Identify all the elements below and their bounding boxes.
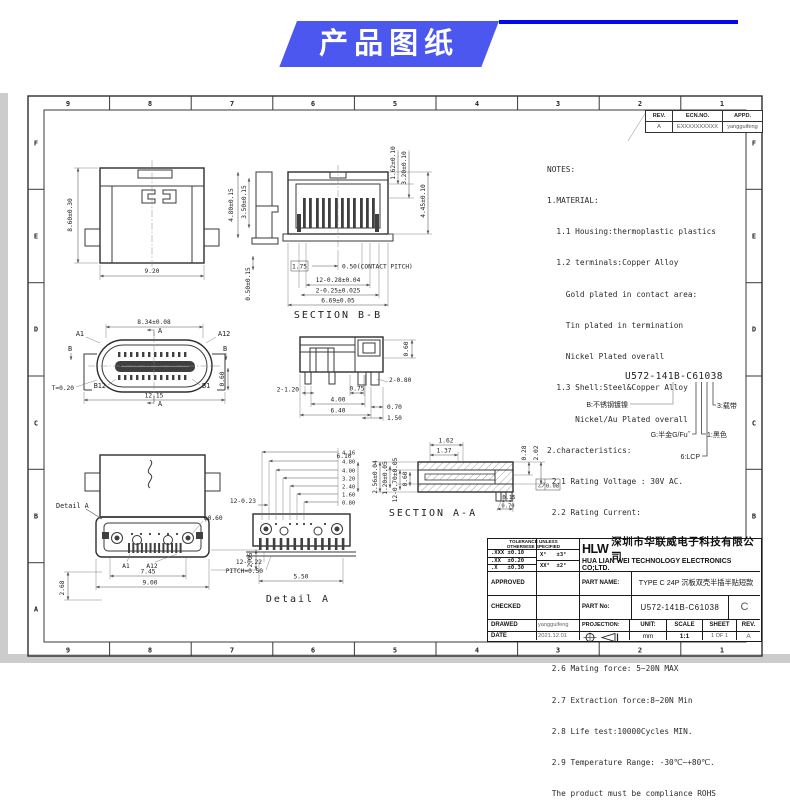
frame-col-label: 6 <box>311 647 315 655</box>
note-line: The product must be compliance ROHS <box>547 789 749 799</box>
checked-label: CHECKED <box>491 595 534 619</box>
part-name-label: PART NAME: <box>582 571 630 595</box>
dim-bb-pitch-ref: 1.75 <box>292 264 307 271</box>
note-line: Gold plated in contact area: <box>547 290 749 300</box>
frame-col-label: 9 <box>66 647 70 655</box>
note-line: Tin plated in termination <box>547 321 749 331</box>
dim-bottom-width: 9.00 <box>143 580 158 587</box>
dim-detail-stack-0: 4.16 <box>342 451 355 457</box>
frame-row-label: C <box>752 420 756 428</box>
frame-row-label: C <box>34 420 38 428</box>
frame-col-label: 7 <box>230 100 234 108</box>
dim-aa-v2: 1.20±0.05 <box>382 461 389 495</box>
note-line: 1.3 Shell:Steel&Copper Alloy <box>547 383 749 393</box>
view-section-aa: 1.62 1.37 2.56±0.04 1.20±0.05 12-0.70±0.… <box>337 438 560 520</box>
dim-bb-r1: 1.62±0.10 <box>390 146 397 180</box>
dim-side-8: 0.60 <box>403 341 410 356</box>
note-line: Nickel Plated overall <box>547 352 749 362</box>
dim-detail-stack-3: 3.20 <box>342 477 355 483</box>
view-top: 8.60±0.30 9.20 <box>67 160 219 280</box>
company-logo: HLW <box>582 542 608 556</box>
angle-tolerance-1: X° ±3° <box>540 552 578 560</box>
frame-row-label: B <box>752 513 756 521</box>
part-rev-value: C <box>729 595 760 619</box>
part-no-label: PART No: <box>582 595 630 619</box>
dim-detail-stack-1: 4.80 <box>342 460 355 466</box>
dim-profile-2: 3.50±0.15 <box>241 185 248 219</box>
frame-col-label: 4 <box>475 100 479 108</box>
frame-row-label: E <box>752 233 756 241</box>
tolerance-header-2: OTHERWISE SPECIFIED <box>507 544 560 549</box>
dim-side-6: 0.70 <box>387 404 402 411</box>
frame-col-label: 5 <box>393 100 397 108</box>
ecn-value: EXXXXXXXXXX <box>673 122 723 132</box>
dim-aa-v1: 2.56±0.04 <box>372 460 379 494</box>
date-label: DATE <box>491 631 534 641</box>
dim-front-leg: 0.60 <box>219 371 226 386</box>
note-line: 2.1 Rating Voltage : 30V AC. <box>547 477 749 487</box>
frame-row-label: D <box>34 326 38 334</box>
dim-bb-width: 6.69±0.05 <box>321 298 355 305</box>
frame-col-label: 2 <box>638 100 642 108</box>
dim-aa-b2: 0.70 <box>501 504 514 510</box>
frame-row-label: B <box>34 513 38 521</box>
scale-label: SCALE <box>667 619 702 631</box>
rev-value: A <box>737 631 760 641</box>
dim-profile-1: 4.80±0.15 <box>228 188 235 222</box>
tolerance-row-1: .XXX ±0.10 <box>491 550 535 557</box>
note-line: 2.7 Extraction force:8~20N Min <box>547 696 749 706</box>
dim-front-width: 12.15 <box>145 393 164 400</box>
unit-value: mm <box>630 631 666 641</box>
scale-value: 1:1 <box>667 631 702 641</box>
dim-profile-3: 0.50±0.15 <box>245 267 252 301</box>
notes-block: NOTES: 1.MATERIAL: 1.1 Housing:thermopla… <box>547 144 749 810</box>
section-a-mark-top: A <box>158 327 162 335</box>
rev-label: REV. <box>737 619 760 631</box>
ecn-header: ECN.NO. <box>673 111 723 121</box>
dim-bottom-pin: 2.68 <box>59 580 66 595</box>
frame-row-label: D <box>752 326 756 334</box>
angle-tolerance-2: XX° ±2° <box>540 563 578 571</box>
detail-a-callout: Detail A <box>56 502 89 510</box>
frame-col-label: 9 <box>66 100 70 108</box>
dim-detail-stack-5: 1.60 <box>342 493 355 499</box>
section-aa-title: SECTION A-A <box>389 508 477 519</box>
dim-side-3: 4.00 <box>331 397 346 404</box>
dim-aa-r1: 0.28 <box>521 445 528 460</box>
dim-aa-b1: 0.15 <box>502 495 515 501</box>
detail-a-title: Detail A <box>266 594 330 605</box>
dim-detail-stack-2: 4.00 <box>342 469 355 475</box>
unit-label: UNIT: <box>630 619 666 631</box>
dim-side-7: 1.50 <box>387 415 402 422</box>
pin-label-a1-bottom: A1 <box>122 563 130 570</box>
drawed-label: DRAWED <box>491 619 534 631</box>
dim-aa-t2: 1.37 <box>437 448 452 455</box>
part-no-value: U572-141B-C61038 <box>632 595 728 619</box>
dim-aa-v3: 12-0.70±0.05 <box>392 457 399 502</box>
dim-aa-t1: 1.62 <box>439 438 454 445</box>
pin-label-a12: A12 <box>218 330 230 338</box>
section-a-mark-bottom: A <box>158 400 162 408</box>
dim-detail-stack-4: 2.40 <box>342 485 355 491</box>
view-side: 0.60 2-0.80 2-1.20 0.75 4.00 0.70 6.40 1… <box>277 337 416 422</box>
note-line: 1.1 Housing:thermoplastic plastics <box>547 227 749 237</box>
revision-table: REV. ECN.NO. APPD. A EXXXXXXXXXX yanggui… <box>645 110 763 133</box>
note-line: 2.6 Mating force: 5~20N MAX <box>547 664 749 674</box>
rev-header: REV. <box>646 111 673 121</box>
projection-symbol <box>582 630 628 641</box>
sheet-value: 1 OF 1 <box>703 631 736 641</box>
part-name-value: TYPE C 24P 沉板双壳半插半贴短款 <box>632 571 760 595</box>
dim-bottom-hole: φ0.60 <box>204 515 223 522</box>
dim-detail-bottom: 5.50 <box>294 574 309 581</box>
frame-col-label: 8 <box>148 647 152 655</box>
appd-header: APPD. <box>723 111 762 121</box>
view-detail-a: 4.16 4.80 4.00 3.20 2.40 1.60 0.80 12-0.… <box>226 448 356 605</box>
note-line: NOTES: <box>547 165 749 175</box>
drawed-value: yangguifeng <box>538 619 578 631</box>
frame-col-label: 5 <box>393 647 397 655</box>
dim-detail-l2: 12-0.22 <box>236 559 262 566</box>
dim-top-height: 8.60±0.30 <box>67 198 74 232</box>
sheet-label: SHEET <box>703 619 736 631</box>
dim-side-1: 2-1.20 <box>277 387 300 394</box>
dim-side-5: 2-0.80 <box>389 377 412 384</box>
dim-bb-posts: 2-0.25±0.025 <box>316 288 361 295</box>
dim-bottom-span: 7.45 <box>141 569 156 576</box>
dim-aa-r2: 2.02 <box>533 445 540 460</box>
frame-row-label: F <box>34 140 38 148</box>
dim-top-width: 9.20 <box>145 268 160 275</box>
note-line: Nickel/Au Plated overall <box>547 415 749 425</box>
view-section-bb: 1.75 0.50(CONTACT PITCH) 12-0.28±0.04 2-… <box>283 146 432 321</box>
pin-label-b12: B12 <box>94 382 106 390</box>
rev-value: A <box>646 122 673 132</box>
pin-label-a1: A1 <box>76 330 84 338</box>
dim-bb-pitch: 0.50(CONTACT PITCH) <box>342 264 413 271</box>
dim-bb-r3: 4.45±0.10 <box>420 184 427 218</box>
section-bb-title: SECTION B-B <box>294 310 382 321</box>
dim-bb-r2: 3.20±0.10 <box>401 151 408 185</box>
tolerance-row-2: .XX ±0.20 <box>491 558 535 565</box>
view-side-profile: 4.80±0.15 3.50±0.15 0.50±0.15 <box>228 172 278 301</box>
dim-side-2: 0.75 <box>350 386 365 393</box>
frame-col-label: 7 <box>230 647 234 655</box>
frame-col-label: 4 <box>475 647 479 655</box>
section-b-mark-left: B <box>68 345 72 353</box>
note-line: 2.characteristics: <box>547 446 749 456</box>
dim-detail-l3: PITCH=0.50 <box>226 568 264 575</box>
pin-label-b1: B1 <box>202 382 210 390</box>
frame-row-label: E <box>34 233 38 241</box>
frame-col-label: 6 <box>311 100 315 108</box>
frame-col-label: 8 <box>148 100 152 108</box>
title-block: TOLERANCE UNLESS OTHERWISE SPECIFIED .XX… <box>487 538 762 642</box>
dim-aa-v4: 0.60 <box>402 471 409 486</box>
section-b-mark-right: B <box>223 345 227 353</box>
note-line: 2.8 Life test:10000Cycles MIN. <box>547 727 749 737</box>
appd-value: yangguifeng <box>723 122 762 132</box>
view-bottom: Detail A φ0.60 A1 A12 7.45 9.00 2.05 2.6… <box>56 455 260 600</box>
dim-detail-stack-6: 0.80 <box>342 501 355 507</box>
dim-front-t: T=0.20 <box>52 385 75 392</box>
frame-col-label: 1 <box>720 100 724 108</box>
note-line: 2.2 Rating Current: <box>547 508 749 518</box>
dim-detail-l1: 12-0.23 <box>230 498 256 505</box>
view-front: A A B B A1 A12 B12 B1 T=0.20 8.34±0.08 0… <box>52 319 231 408</box>
frame-col-label: 3 <box>556 100 560 108</box>
frame-row-label: F <box>752 140 756 148</box>
note-line: 2.9 Temperature Range: -30℃~+80℃. <box>547 758 749 768</box>
note-line: 1.MATERIAL: <box>547 196 749 206</box>
date-value: 2021.12.01 <box>538 631 578 641</box>
dim-bb-terminals: 12-0.28±0.04 <box>316 277 361 284</box>
approved-label: APPROVED <box>491 571 534 595</box>
note-line: 1.2 terminals:Copper Alloy <box>547 258 749 268</box>
dim-front-top: 8.34±0.08 <box>137 319 171 326</box>
dim-side-4: 6.40 <box>331 408 346 415</box>
frame-row-label: A <box>34 606 39 614</box>
company-name-en: HUA LIAN WEI TECHNOLOGY ELECTRONICS CO;L… <box>582 558 760 569</box>
